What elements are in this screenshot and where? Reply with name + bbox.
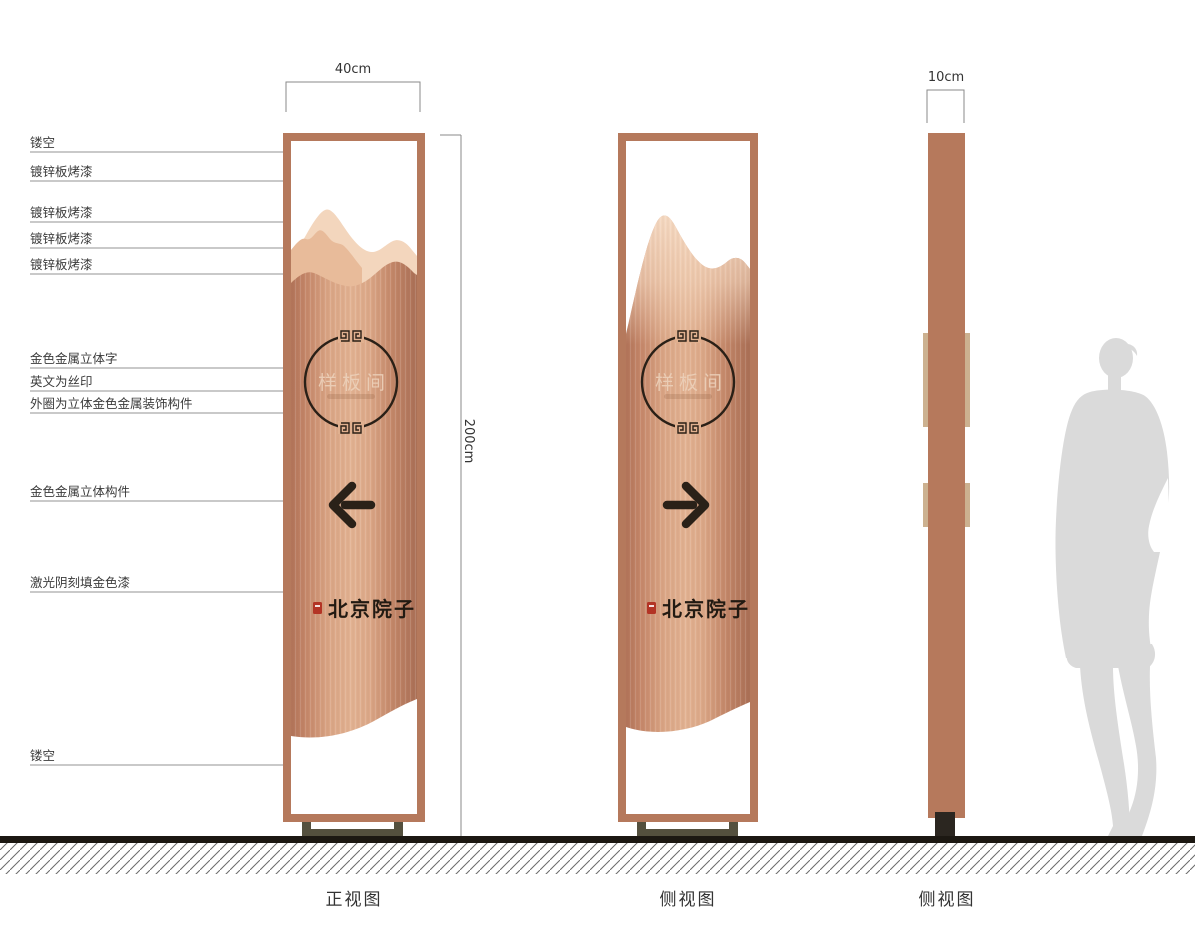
english-silkscreen-text	[327, 394, 375, 399]
pylon-base	[637, 822, 738, 836]
annotation-label: 镀锌板烤漆	[30, 231, 93, 246]
annotation-label: 金色金属立体字	[30, 351, 118, 366]
silhouette-head	[1099, 338, 1133, 378]
dimension-value: 40cm	[335, 62, 371, 77]
annotation-label: 外圈为立体金色金属装饰构件	[30, 396, 193, 411]
silhouette-skirt	[1066, 644, 1155, 668]
silhouette-left-leg	[1080, 666, 1130, 836]
annotation-label: 英文为丝印	[30, 374, 93, 389]
pylon-profile-view	[923, 133, 970, 836]
view-label-side: 侧视图	[660, 890, 717, 910]
dimension-front-width: 40cm	[286, 62, 420, 112]
english-silkscreen-text	[664, 394, 712, 399]
ground-line	[0, 836, 1195, 843]
annotation-label: 镀锌板烤漆	[30, 205, 93, 220]
pylon-side-graphics: 样板间 北京院子	[626, 215, 750, 731]
annotation-label: 镀锌板烤漆	[30, 257, 93, 272]
ground	[0, 836, 1195, 874]
pylon-base	[302, 822, 403, 836]
brand-name-text: 北京院子	[328, 597, 416, 621]
dimension-value: 10cm	[928, 70, 964, 85]
brand-name-text: 北京院子	[662, 597, 750, 621]
pylon-front-graphics: 样板间 北京院子	[291, 209, 417, 737]
signage-design-sheet: { "annotations": { "items": [ {"label": …	[0, 0, 1195, 927]
room-name-text: 样板间	[318, 372, 390, 394]
human-scale-silhouette	[1055, 338, 1170, 836]
dimension-bracket	[927, 90, 964, 123]
pylon-column	[928, 133, 965, 818]
silhouette-neck	[1108, 374, 1121, 390]
pylon-front-view: 样板间 北京院子	[283, 133, 425, 836]
ground-hatch	[0, 843, 1195, 874]
dimension-height: 200cm	[440, 135, 476, 836]
design-drawing-canvas: 镂空 镀锌板烤漆 镀锌板烤漆 镀锌板烤漆 镀锌板烤漆 金色金属立体字 英文为丝印…	[0, 0, 1195, 927]
seal-mark	[649, 605, 654, 607]
brand-logo: 北京院子	[647, 597, 750, 621]
room-name-text: 样板间	[655, 372, 727, 394]
annotation-label: 镂空	[30, 135, 55, 150]
brushed-texture	[626, 215, 750, 731]
view-label-profile: 侧视图	[919, 890, 976, 910]
annotation-label: 激光阴刻填金色漆	[30, 575, 130, 590]
view-label-front: 正视图	[326, 890, 383, 910]
base-foot	[935, 812, 955, 836]
annotation-label: 镀锌板烤漆	[30, 164, 93, 179]
seal-mark	[315, 605, 320, 607]
base-bar	[302, 829, 403, 836]
seal-stamp-icon	[647, 602, 656, 614]
seal-stamp-icon	[313, 602, 322, 614]
dimension-bracket	[286, 82, 420, 112]
brand-logo: 北京院子	[313, 597, 416, 621]
dimension-value: 200cm	[461, 419, 476, 464]
view-labels: 正视图 侧视图 侧视图	[326, 890, 976, 910]
dimension-side-width: 10cm	[927, 70, 964, 123]
base-bar	[637, 829, 738, 836]
annotation-label: 镂空	[30, 748, 55, 763]
annotation-label: 金色金属立体构件	[30, 484, 130, 499]
pylon-side-view: 样板间 北京院子	[618, 133, 758, 836]
